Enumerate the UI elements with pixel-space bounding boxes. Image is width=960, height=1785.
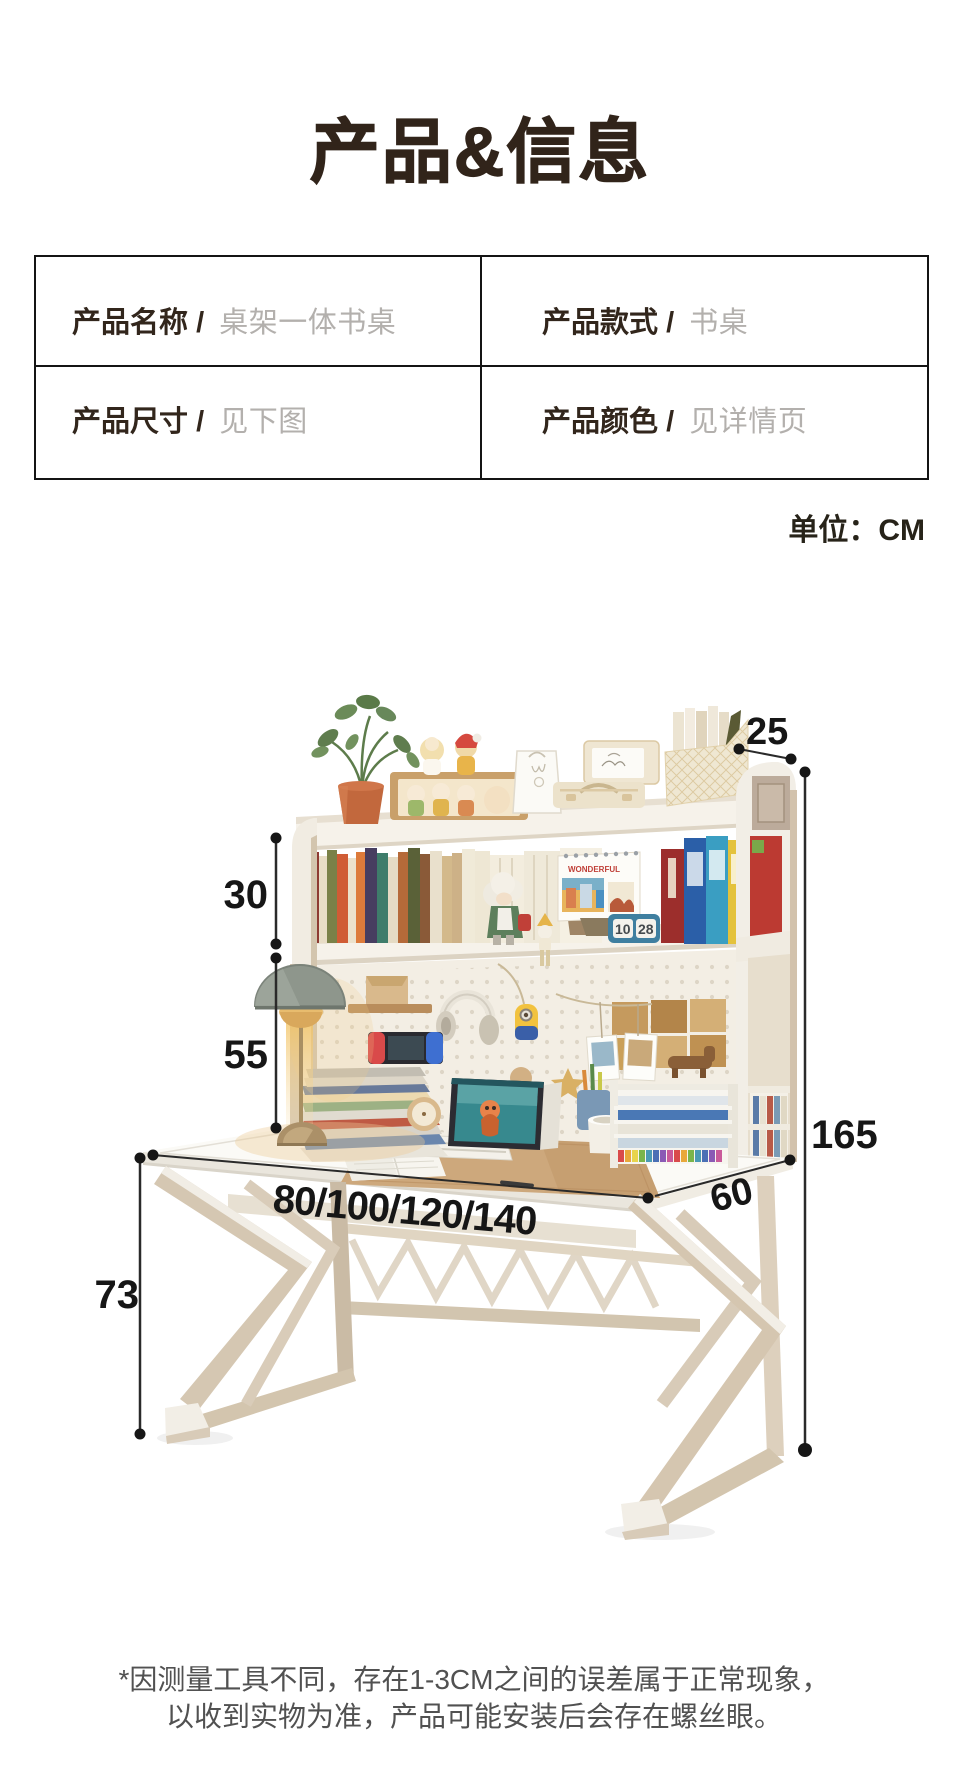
svg-text:10: 10 (615, 921, 631, 937)
svg-text:25: 25 (746, 711, 788, 753)
svg-text:28: 28 (638, 921, 654, 937)
svg-text:30: 30 (224, 873, 269, 917)
svg-text:55: 55 (224, 1033, 269, 1077)
svg-text:WONDERFUL: WONDERFUL (568, 865, 620, 874)
svg-text:73: 73 (95, 1273, 140, 1317)
svg-text:165: 165 (811, 1113, 878, 1157)
